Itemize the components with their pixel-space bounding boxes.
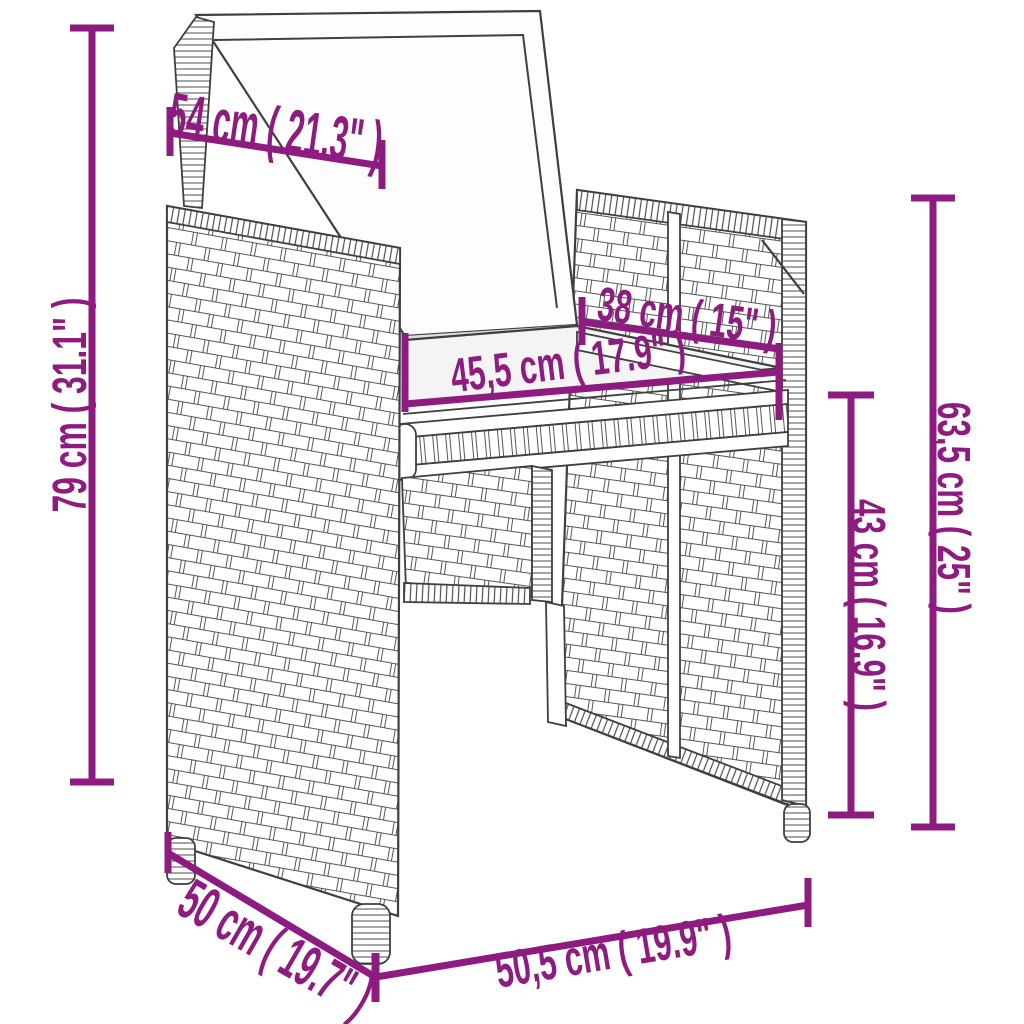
under-seat-corner-post xyxy=(532,466,552,602)
chair-right-back-panel xyxy=(558,190,810,842)
dimension-backrest-height: 63,5 cm ( 25" ) xyxy=(911,198,980,827)
dimension-total-height: 79 cm ( 31.1" ) xyxy=(44,28,114,782)
label-total-height: 79 cm ( 31.1" ) xyxy=(44,298,97,513)
rear-left-leg xyxy=(546,602,566,726)
chair-dimension-drawing: 54 cm ( 21.3" ) 79 cm ( 31.1" ) 38 cm ( … xyxy=(0,0,1024,1024)
label-base-width: 50,5 cm ( 19.9" ) xyxy=(491,904,735,999)
label-seat-height: 43 cm ( 16.9" ) xyxy=(843,499,895,711)
dimension-base-width: 50,5 cm ( 19.9" ) xyxy=(376,878,808,1002)
right-front-foot xyxy=(784,804,810,842)
right-front-post xyxy=(782,219,806,806)
label-backrest-height: 63,5 cm ( 25" ) xyxy=(928,402,980,614)
under-seat-left-wall xyxy=(402,466,532,596)
dimension-diagram: 54 cm ( 21.3" ) 79 cm ( 31.1" ) 38 cm ( … xyxy=(0,0,1024,1024)
dimension-seat-height: 43 cm ( 16.9" ) xyxy=(828,395,895,815)
left-front-foot xyxy=(352,904,390,964)
chair-left-panel xyxy=(167,206,400,964)
